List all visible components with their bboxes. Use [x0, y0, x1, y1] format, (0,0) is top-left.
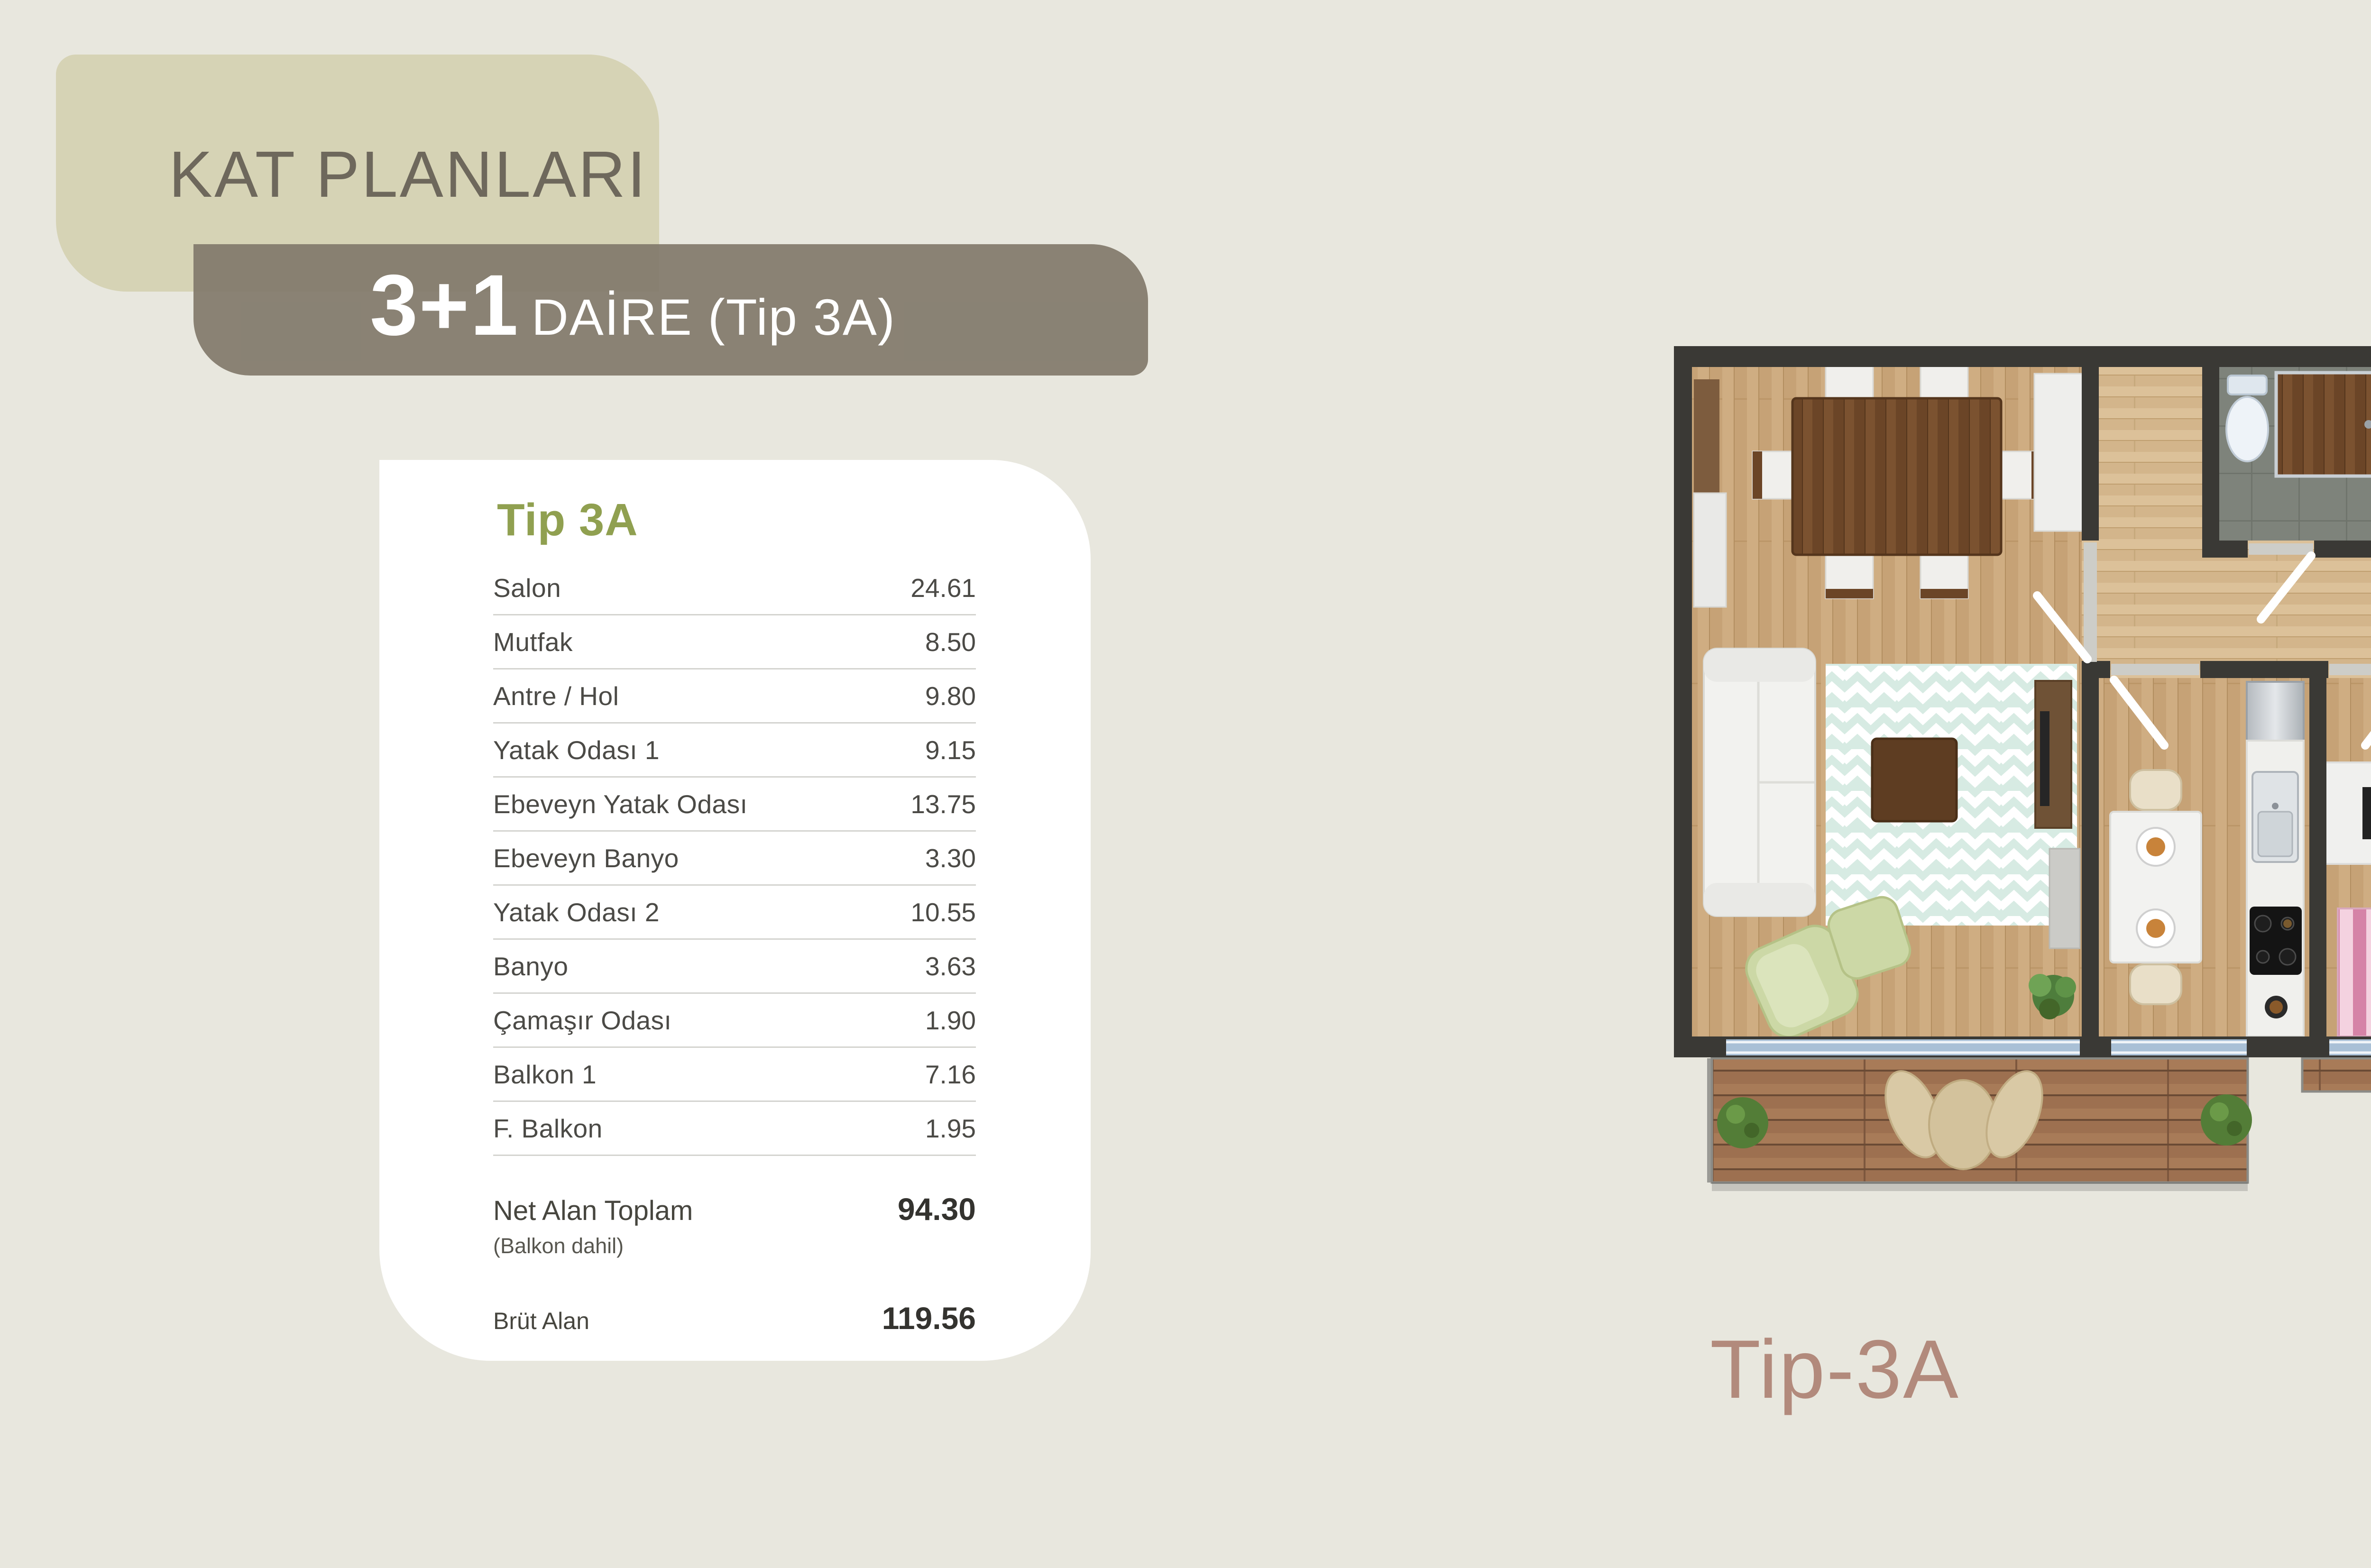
sideboard [1694, 493, 1726, 607]
banner-text: 3+1DAİRE (Tip 3A) [370, 255, 896, 355]
row-label: Salon [493, 573, 561, 603]
monitor-icon [2362, 787, 2371, 839]
row-label: F. Balkon [493, 1113, 603, 1144]
row-value: 7.16 [925, 1059, 976, 1090]
window-pink-room [2329, 1039, 2371, 1055]
buffet-cabinet [2034, 374, 2087, 531]
row-value: 13.75 [910, 789, 976, 819]
row-label: Balkon 1 [493, 1059, 597, 1090]
table-row: Yatak Odası 210.55 [493, 886, 976, 940]
chair [2130, 770, 2181, 810]
area-table: Salon24.61 Mutfak8.50 Antre / Hol9.80 Ya… [493, 561, 976, 1156]
coffee-table [1872, 739, 1957, 821]
row-value: 1.95 [925, 1113, 976, 1144]
row-value: 3.63 [925, 951, 976, 981]
row-value: 3.30 [925, 843, 976, 873]
bush-icon [1717, 1097, 1768, 1148]
row-value: 10.55 [910, 897, 976, 927]
row-label: Antre / Hol [493, 681, 619, 711]
dining-table [1792, 398, 2001, 555]
apartment-type-banner: 3+1DAİRE (Tip 3A) [193, 244, 1148, 376]
row-label: Ebeveyn Yatak Odası [493, 789, 747, 819]
row-value: 9.80 [925, 681, 976, 711]
row-value: 1.90 [925, 1005, 976, 1036]
table-row: Banyo3.63 [493, 940, 976, 994]
window-kitchen [2111, 1039, 2247, 1055]
total-brut-row: Brüt Alan 119.56 [493, 1300, 976, 1336]
total-net-row: Net Alan Toplam 94.30 [493, 1191, 976, 1227]
row-label: Mutfak [493, 627, 573, 657]
brochure-page: KAT PLANLARI 3+1DAİRE (Tip 3A) esen 11 t… [0, 0, 2371, 1568]
page-title: KAT PLANLARI [169, 129, 643, 220]
table-row: F. Balkon1.95 [493, 1102, 976, 1156]
table-row: Balkon 17.16 [493, 1048, 976, 1102]
row-value: 9.15 [925, 735, 976, 765]
floor-plan [1636, 332, 2371, 1209]
row-value: 24.61 [910, 573, 976, 603]
banner-title-rest: DAİRE (Tip 3A) [532, 288, 896, 346]
floor-plan-drawing [1636, 332, 2371, 1209]
total-net-note: (Balkon dahil) [493, 1234, 624, 1258]
table-row: Yatak Odası 19.15 [493, 724, 976, 778]
toilet-icon [2228, 376, 2267, 394]
balcony [1707, 1058, 2371, 1191]
card-title: Tip 3A [497, 494, 638, 546]
tv-icon [2040, 711, 2049, 806]
total-brut-value: 119.56 [882, 1300, 976, 1336]
table-row: Mutfak8.50 [493, 615, 976, 669]
wall-cabinet [1694, 379, 1719, 493]
area-table-card: Tip 3A Salon24.61 Mutfak8.50 Antre / Hol… [379, 460, 1091, 1361]
row-label: Yatak Odası 1 [493, 735, 660, 765]
fridge-icon [2247, 682, 2304, 741]
shower-icon [2276, 373, 2371, 476]
banner-title-big: 3+1 [370, 257, 519, 353]
plan-caption: Tip-3A [1710, 1322, 1960, 1417]
table-row: Ebeveyn Banyo3.30 [493, 832, 976, 886]
chair [2130, 964, 2181, 1004]
row-label: Banyo [493, 951, 568, 981]
row-label: Ebeveyn Banyo [493, 843, 679, 873]
cabinet [2049, 849, 2080, 948]
total-brut-label: Brüt Alan [493, 1307, 589, 1335]
table-row: Antre / Hol9.80 [493, 669, 976, 724]
window-salon [1726, 1039, 2080, 1055]
single-bed-pink [2338, 908, 2371, 1036]
sofa [1704, 649, 1815, 916]
total-net-value: 94.30 [898, 1191, 976, 1227]
bush-icon [2201, 1094, 2252, 1146]
row-value: 8.50 [925, 627, 976, 657]
table-row: Salon24.61 [493, 561, 976, 615]
total-net-label: Net Alan Toplam [493, 1195, 693, 1227]
row-label: Yatak Odası 2 [493, 897, 660, 927]
table-row: Ebeveyn Yatak Odası13.75 [493, 778, 976, 832]
table-row: Çamaşır Odası1.90 [493, 994, 976, 1048]
row-label: Çamaşır Odası [493, 1005, 671, 1036]
